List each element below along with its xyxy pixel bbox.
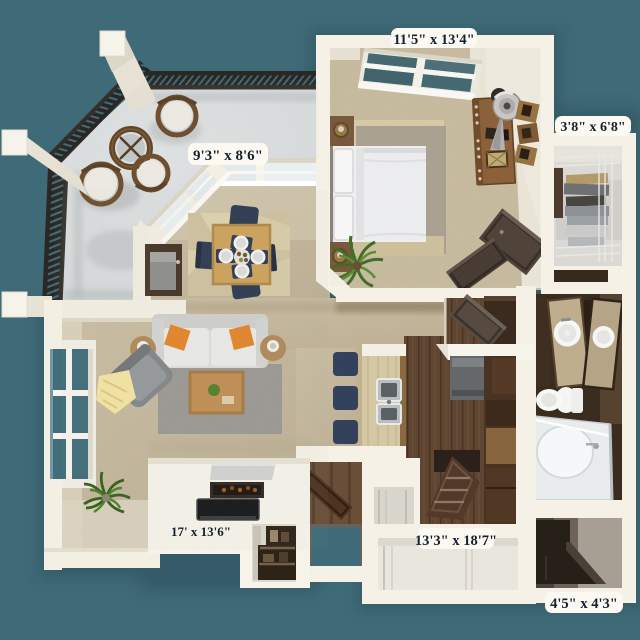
svg-text:13'3" x 18'7": 13'3" x 18'7": [415, 533, 497, 549]
svg-text:9'3" x 8'6": 9'3" x 8'6": [193, 148, 263, 164]
svg-text:17' x 13'6": 17' x 13'6": [171, 524, 231, 539]
svg-text:4'5" x 4'3": 4'5" x 4'3": [550, 596, 618, 612]
svg-text:11'5" x 13'4": 11'5" x 13'4": [393, 32, 474, 48]
svg-text:3'8" x 6'8": 3'8" x 6'8": [560, 120, 625, 135]
